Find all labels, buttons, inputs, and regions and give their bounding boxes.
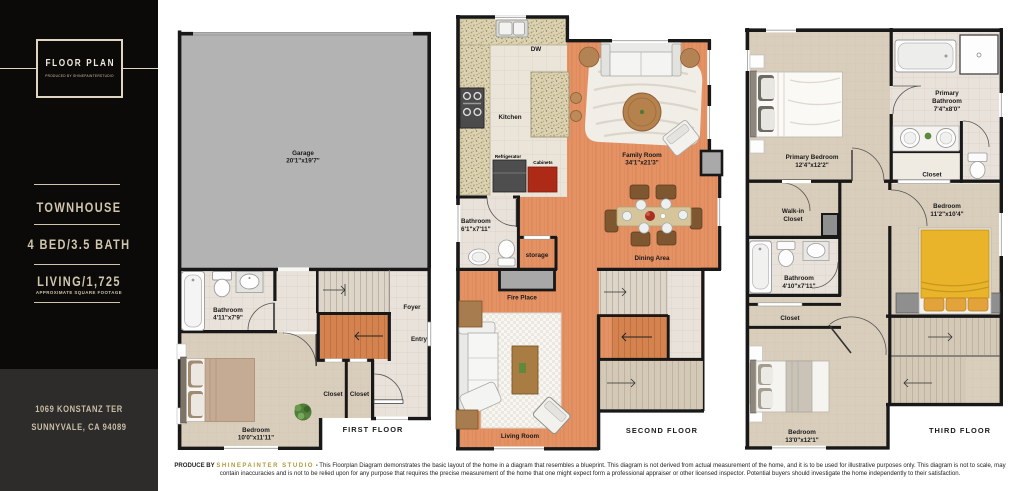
svg-text:11'2"x10'4": 11'2"x10'4" <box>930 211 963 218</box>
svg-text:13'0"x12'1": 13'0"x12'1" <box>785 437 818 444</box>
svg-text:Entry: Entry <box>411 336 428 343</box>
svg-text:10'0"x11'11": 10'0"x11'11" <box>238 435 274 442</box>
svg-text:FIRST FLOOR: FIRST FLOOR <box>343 425 404 434</box>
svg-text:Primary Bedroom: Primary Bedroom <box>786 154 839 161</box>
svg-text:Bathroom: Bathroom <box>784 275 814 282</box>
svg-text:storage: storage <box>526 252 549 259</box>
svg-text:Closet: Closet <box>922 172 942 179</box>
svg-text:Closet: Closet <box>350 391 370 398</box>
svg-text:Garage: Garage <box>292 150 314 157</box>
svg-text:7'4"x8'0": 7'4"x8'0" <box>934 106 960 113</box>
svg-text:34'1"x21'3": 34'1"x21'3" <box>625 160 658 167</box>
svg-text:Closet: Closet <box>783 216 803 223</box>
svg-text:Walk-in: Walk-in <box>782 208 804 215</box>
svg-text:Bathroom: Bathroom <box>932 98 962 105</box>
svg-text:DW: DW <box>531 46 542 53</box>
svg-text:Fire Place: Fire Place <box>507 295 537 302</box>
svg-text:6'1"x7'11": 6'1"x7'11" <box>461 226 491 233</box>
svg-text:Kitchen: Kitchen <box>498 114 521 121</box>
svg-text:Bathroom: Bathroom <box>213 307 243 314</box>
svg-text:Living Room: Living Room <box>501 433 540 440</box>
svg-text:Family Room: Family Room <box>622 152 662 159</box>
svg-text:4'11"x7'9": 4'11"x7'9" <box>213 315 243 322</box>
svg-text:20'1"x19'7": 20'1"x19'7" <box>286 158 319 165</box>
svg-text:Cabinets: Cabinets <box>533 160 553 165</box>
svg-text:Bedroom: Bedroom <box>933 203 961 210</box>
svg-text:SECOND FLOOR: SECOND FLOOR <box>626 426 698 435</box>
svg-text:Dining Area: Dining Area <box>634 255 670 262</box>
svg-text:Bathroom: Bathroom <box>461 218 491 225</box>
svg-text:Foyer: Foyer <box>403 304 421 311</box>
svg-text:Closet: Closet <box>780 315 800 322</box>
svg-text:Bedroom: Bedroom <box>788 429 816 436</box>
svg-text:4'10"x7'11": 4'10"x7'11" <box>782 283 815 290</box>
svg-text:12'4"x12'2": 12'4"x12'2" <box>795 162 828 169</box>
svg-text:Primary: Primary <box>935 90 959 97</box>
svg-text:Bedroom: Bedroom <box>242 427 270 434</box>
svg-text:Refrigerator: Refrigerator <box>495 154 522 159</box>
svg-text:THIRD FLOOR: THIRD FLOOR <box>929 426 991 435</box>
svg-text:Closet: Closet <box>323 391 343 398</box>
